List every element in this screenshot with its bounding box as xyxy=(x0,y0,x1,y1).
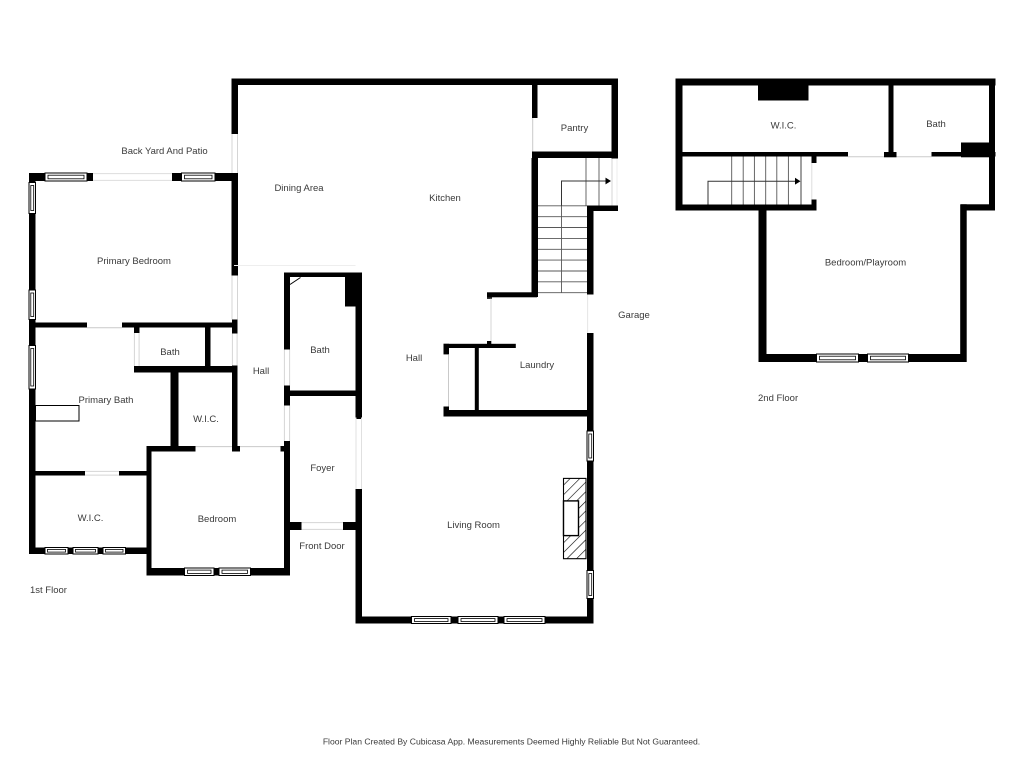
svg-text:Foyer: Foyer xyxy=(310,463,334,474)
svg-text:Hall: Hall xyxy=(253,366,269,377)
svg-text:Kitchen: Kitchen xyxy=(429,193,461,204)
svg-text:W.I.C.: W.I.C. xyxy=(771,120,797,131)
svg-text:Bath: Bath xyxy=(310,345,330,356)
svg-text:Hall: Hall xyxy=(406,353,422,364)
svg-text:Bath: Bath xyxy=(160,347,180,358)
svg-text:Bedroom/Playroom: Bedroom/Playroom xyxy=(825,257,906,268)
svg-text:Dining Area: Dining Area xyxy=(274,183,324,194)
svg-text:Living Room: Living Room xyxy=(447,520,500,531)
svg-text:Floor Plan Created By Cubicasa: Floor Plan Created By Cubicasa App. Meas… xyxy=(323,736,700,746)
svg-text:Garage: Garage xyxy=(618,310,650,321)
svg-text:W.I.C.: W.I.C. xyxy=(193,414,219,425)
svg-text:Pantry: Pantry xyxy=(561,123,589,134)
svg-text:2nd Floor: 2nd Floor xyxy=(758,393,798,404)
svg-text:Laundry: Laundry xyxy=(520,360,555,371)
svg-text:Front Door: Front Door xyxy=(299,541,344,552)
svg-text:Primary Bedroom: Primary Bedroom xyxy=(97,256,171,267)
svg-text:Primary Bath: Primary Bath xyxy=(79,395,134,406)
svg-text:1st Floor: 1st Floor xyxy=(30,585,67,596)
svg-text:Bedroom: Bedroom xyxy=(198,514,237,525)
svg-text:Bath: Bath xyxy=(926,119,946,130)
svg-text:W.I.C.: W.I.C. xyxy=(78,513,104,524)
svg-text:Back Yard And Patio: Back Yard And Patio xyxy=(121,146,207,157)
